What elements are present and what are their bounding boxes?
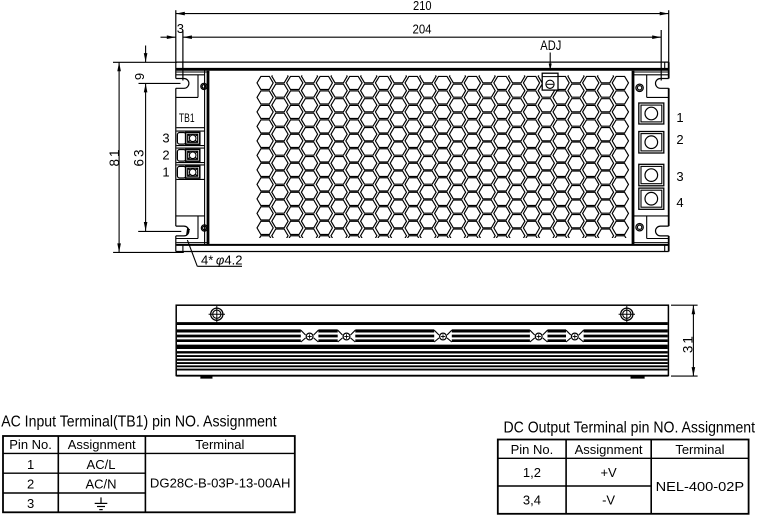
svg-text:DC Output Terminal pin NO. Ass: DC Output Terminal pin NO. Assignment <box>504 419 756 436</box>
svg-text:210: 210 <box>413 0 432 13</box>
svg-text:Pin No.: Pin No. <box>9 437 52 452</box>
svg-text:-V: -V <box>602 493 615 508</box>
svg-text:2: 2 <box>27 477 34 492</box>
svg-text:TB1: TB1 <box>179 113 195 125</box>
svg-text:NEL-400-02P: NEL-400-02P <box>656 479 745 494</box>
svg-text:204: 204 <box>413 21 432 36</box>
svg-text:AC/L: AC/L <box>87 457 116 472</box>
svg-text:1: 1 <box>27 457 34 472</box>
svg-text:ADJ: ADJ <box>540 37 561 53</box>
svg-text:3: 3 <box>676 169 683 184</box>
svg-text:DG28C-B-03P-13-00AH: DG28C-B-03P-13-00AH <box>150 475 291 490</box>
svg-text:Pin No.: Pin No. <box>511 442 554 457</box>
svg-text:3: 3 <box>177 21 184 36</box>
svg-text:1: 1 <box>162 164 169 179</box>
svg-text:63: 63 <box>132 147 147 166</box>
svg-text:Assignment: Assignment <box>68 437 136 452</box>
svg-text:2: 2 <box>162 147 169 162</box>
svg-text:Terminal: Terminal <box>195 437 244 452</box>
svg-text:3: 3 <box>27 496 34 511</box>
svg-text:2: 2 <box>676 132 683 147</box>
svg-text:1: 1 <box>676 110 683 125</box>
svg-text:1,2: 1,2 <box>523 465 541 480</box>
svg-text:+V: +V <box>600 465 617 480</box>
svg-text:Terminal: Terminal <box>675 442 724 457</box>
svg-text:9: 9 <box>132 73 147 80</box>
svg-text:3: 3 <box>162 130 169 145</box>
svg-text:3,4: 3,4 <box>523 493 541 508</box>
svg-text:31: 31 <box>681 334 696 353</box>
svg-text:81: 81 <box>107 147 122 166</box>
svg-text:Assignment: Assignment <box>575 442 643 457</box>
svg-text:AC Input Terminal(TB1) pin NO.: AC Input Terminal(TB1) pin NO. Assignmen… <box>1 414 277 431</box>
svg-text:4* φ4.2: 4* φ4.2 <box>201 252 242 267</box>
svg-text:AC/N: AC/N <box>85 477 116 492</box>
svg-text:4: 4 <box>676 195 683 210</box>
